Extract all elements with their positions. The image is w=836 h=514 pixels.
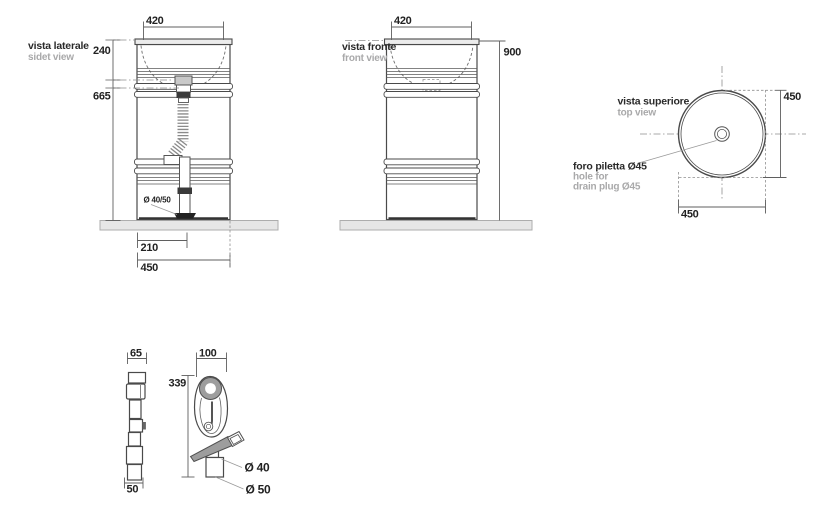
front-floor-slab (340, 221, 532, 231)
faucet-dim-50-label: 50 (127, 484, 139, 496)
side-drain-dimension: Ø 40/50 (144, 196, 172, 205)
faucet-dim-100-label: 100 (199, 348, 217, 360)
drain-hole-outer (715, 127, 730, 142)
faucet-dim-65-label: 65 (130, 348, 142, 360)
side-dim-420: 420 (144, 15, 224, 40)
faucet-stem-ring-outer (204, 422, 213, 431)
side-dim-240-label: 240 (93, 45, 111, 57)
drain-body (177, 85, 191, 92)
side-view-title: vista laterale (28, 40, 89, 52)
faucet-d50-label: Ø 50 (246, 483, 271, 497)
faucet-dim-339-label: 339 (169, 378, 187, 390)
drain-nut (177, 92, 191, 98)
side-view-drawing: Ø 40/50 420 240 665 210 (28, 15, 278, 274)
faucet-dim-65: 65 (128, 348, 147, 365)
floor-flange (174, 213, 196, 219)
top-view-subtitle: top view (618, 108, 657, 119)
faucet-side-body (127, 373, 146, 481)
faucet-front-body (191, 377, 245, 478)
faucet-base-cylinder (206, 458, 224, 478)
standpipe (180, 157, 191, 214)
drain-popup-cap (175, 76, 192, 85)
front-dim-900-label: 900 (504, 47, 522, 59)
pipe-clamp (178, 188, 193, 195)
top-view-drawing: 450 450 foro piletta Ø45 hole for drain … (573, 66, 806, 221)
d40-leader (222, 459, 243, 468)
drain-adapter (179, 98, 189, 103)
front-view-subtitle: front view (342, 53, 388, 64)
front-barrel-body (387, 45, 478, 220)
side-floor-slab (100, 221, 278, 231)
top-dim-450-bottom: 450 (679, 200, 766, 221)
front-barrel-rim (385, 39, 480, 45)
top-view-title: vista superiore (618, 96, 690, 108)
faucet-d40-label: Ø 40 (245, 461, 270, 475)
front-dim-420: 420 (392, 15, 472, 40)
side-view-subtitle: sidet view (28, 52, 74, 63)
faucet-head-center (205, 383, 216, 394)
top-dim-450-right-label: 450 (784, 91, 802, 103)
front-dim-420-label: 420 (394, 15, 412, 27)
drawing-canvas: Ø 40/50 420 240 665 210 (0, 0, 836, 514)
drain-note-english-2: drain plug Ø45 (573, 182, 641, 193)
front-dim-900: 900 (479, 41, 522, 221)
faucet-side-drawing: 65 50 (125, 348, 147, 496)
faucet-front-drawing: 100 339 Ø 40 Ø 50 (169, 348, 271, 497)
side-dim-450-label: 450 (141, 262, 159, 274)
side-dim-665-label: 665 (93, 91, 111, 103)
faucet-dim-339: 339 (169, 376, 195, 478)
side-barrel-rim (135, 39, 232, 45)
d50-leader (216, 477, 244, 489)
faucet-side-lever-tab (143, 422, 146, 430)
top-dim-450-bottom-label: 450 (681, 209, 699, 221)
side-dim-420-label: 420 (146, 15, 164, 27)
front-view-drawing: 420 900 vista fronte front view (340, 15, 532, 230)
faucet-dim-100: 100 (197, 348, 227, 378)
front-view-title: vista fronte (342, 41, 397, 53)
side-dim-210-label: 210 (141, 242, 159, 254)
technical-drawing-sheet: Ø 40/50 420 240 665 210 (0, 0, 836, 514)
